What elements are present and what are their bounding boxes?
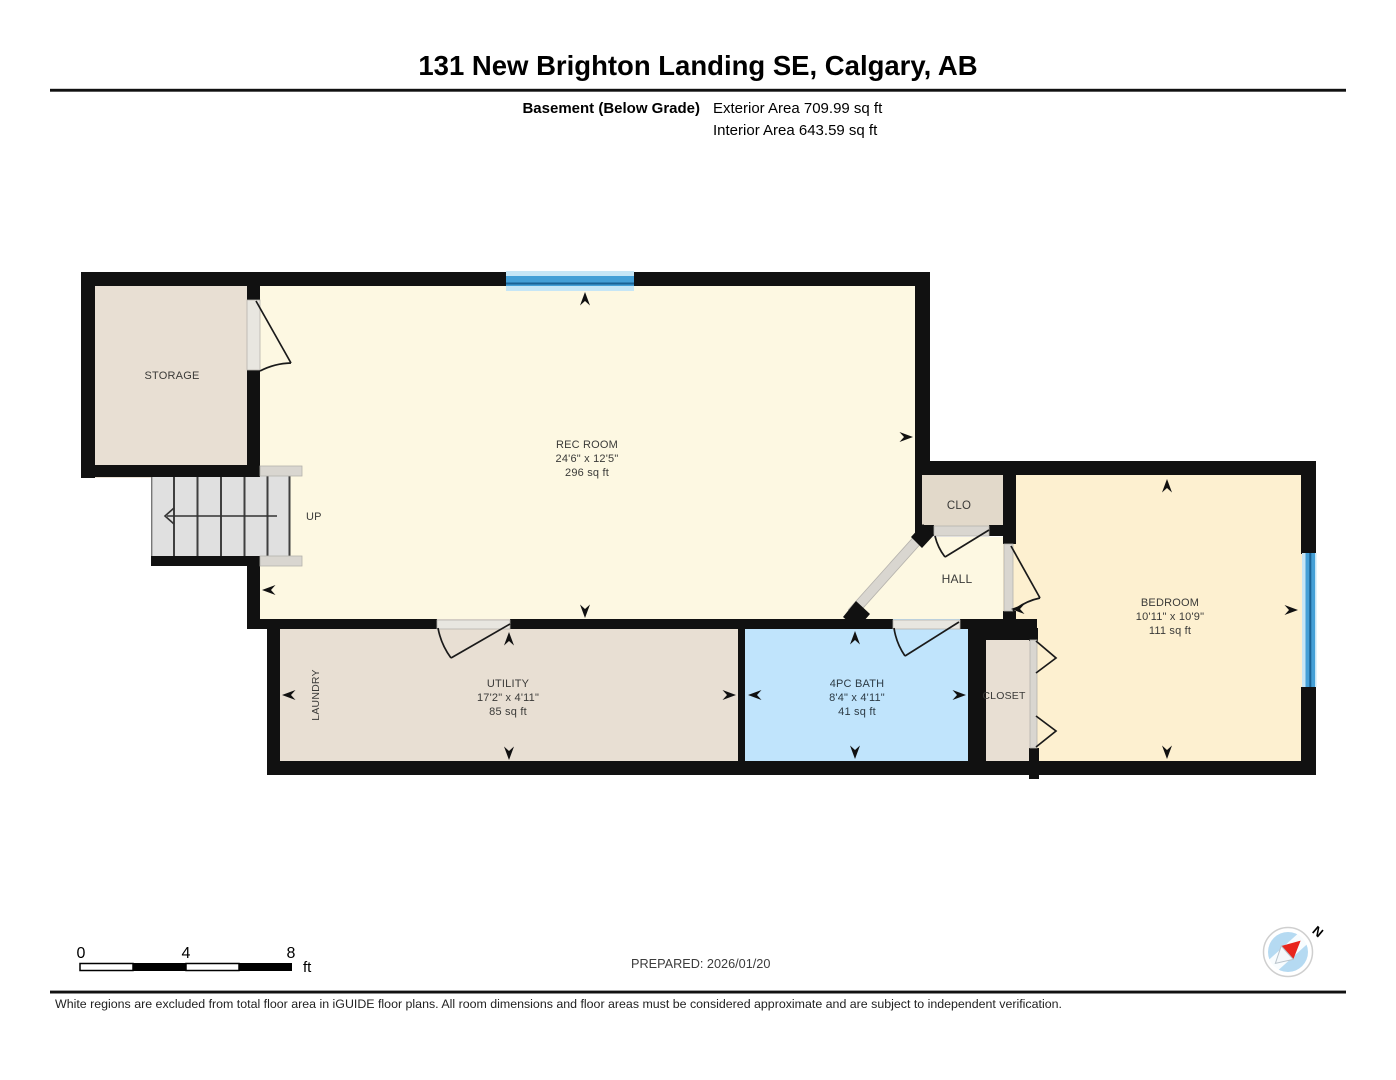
svg-text:17'2" x 4'11": 17'2" x 4'11" bbox=[477, 692, 539, 704]
svg-text:41 sq ft: 41 sq ft bbox=[838, 706, 876, 718]
svg-text:BEDROOM: BEDROOM bbox=[1141, 597, 1199, 609]
svg-text:8'4" x 4'11": 8'4" x 4'11" bbox=[829, 692, 885, 704]
svg-text:8: 8 bbox=[287, 945, 296, 962]
svg-text:REC ROOM: REC ROOM bbox=[556, 439, 618, 451]
svg-text:Basement (Below Grade): Basement (Below Grade) bbox=[522, 100, 700, 117]
svg-text:ft: ft bbox=[303, 959, 312, 976]
svg-text:296 sq ft: 296 sq ft bbox=[565, 467, 609, 479]
svg-text:0: 0 bbox=[77, 945, 86, 962]
svg-text:CLO: CLO bbox=[947, 500, 971, 512]
svg-text:PREPARED: 2026/01/20: PREPARED: 2026/01/20 bbox=[631, 957, 770, 971]
svg-text:HALL: HALL bbox=[942, 572, 973, 586]
svg-text:10'11" x 10'9": 10'11" x 10'9" bbox=[1136, 611, 1204, 623]
svg-text:131 New Brighton Landing SE, C: 131 New Brighton Landing SE, Calgary, AB bbox=[418, 50, 977, 81]
svg-text:4: 4 bbox=[182, 945, 191, 962]
svg-text:UP: UP bbox=[306, 511, 322, 523]
svg-text:Exterior Area 709.99 sq ft: Exterior Area 709.99 sq ft bbox=[713, 100, 883, 117]
svg-text:CLOSET: CLOSET bbox=[982, 690, 1026, 702]
svg-text:4PC BATH: 4PC BATH bbox=[830, 678, 885, 690]
svg-text:LAUNDRY: LAUNDRY bbox=[310, 669, 322, 720]
svg-text:111 sq ft: 111 sq ft bbox=[1149, 625, 1191, 637]
svg-text:White regions are excluded fro: White regions are excluded from total fl… bbox=[55, 997, 1062, 1011]
svg-text:UTILITY: UTILITY bbox=[487, 678, 530, 690]
svg-text:STORAGE: STORAGE bbox=[145, 370, 200, 382]
svg-text:N: N bbox=[1309, 923, 1326, 941]
svg-text:Interior Area 643.59 sq ft: Interior Area 643.59 sq ft bbox=[713, 122, 878, 139]
svg-text:24'6" x 12'5": 24'6" x 12'5" bbox=[556, 453, 619, 465]
svg-text:85 sq ft: 85 sq ft bbox=[489, 706, 527, 718]
